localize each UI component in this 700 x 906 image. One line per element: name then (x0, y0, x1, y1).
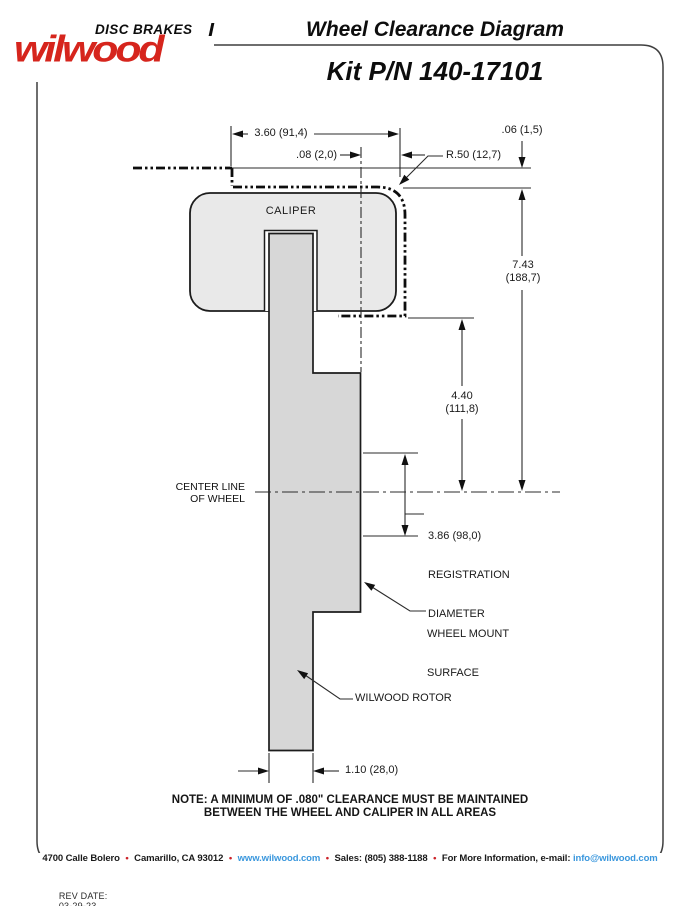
footer-email-link[interactable]: info@wilwood.com (573, 853, 658, 864)
wheel-mount-surface-label: WHEEL MOUNT SURFACE (427, 602, 509, 706)
footer-city: Camarillo, CA 93012 (134, 853, 223, 864)
footer-contact-bar: 4700 Calle Bolero • Camarillo, CA 93012 … (36, 853, 663, 864)
footer-website-link[interactable]: www.wilwood.com (238, 853, 321, 864)
dim-overall-height-mm: (188,7) (498, 272, 548, 285)
page: DISC BRAKES wilwood Wheel Clearance Diag… (0, 0, 700, 906)
registration-value: 3.86 (98,0) (428, 530, 510, 543)
caliper-label: CALIPER (256, 205, 326, 217)
rev-date-value: 03-29-23 (59, 901, 97, 906)
wheel-mount-label-1: WHEEL MOUNT (427, 628, 509, 641)
wilwood-logo: DISC BRAKES wilwood (14, 18, 214, 82)
rev-date: REV DATE: 03-29-23 (48, 881, 110, 906)
wilwood-rotor-label: WILWOOD ROTOR (355, 692, 452, 704)
dim-mount-to-center-in: 4.40 (437, 390, 487, 403)
footer-more-info: For More Information, e-mail: (442, 853, 571, 864)
dim-corner-radius: R.50 (12,7) (446, 149, 501, 161)
page-title: Wheel Clearance Diagram (205, 18, 665, 42)
dim-mount-to-center: 4.40 (111,8) (437, 390, 487, 415)
rev-date-label: REV DATE: (59, 891, 108, 901)
registration-label-1: REGISTRATION (428, 569, 510, 582)
logo-tagline-bar (209, 23, 215, 36)
dim-overall-height-in: 7.43 (498, 259, 548, 272)
wheel-mount-label-2: SURFACE (427, 667, 509, 680)
footer-bullet: • (122, 853, 131, 864)
footer-sales-phone: Sales: (805) 388-1188 (335, 853, 428, 864)
clearance-note: NOTE: A MINIMUM OF .080" CLEARANCE MUST … (100, 794, 600, 820)
center-line-label-1: CENTER LINE (155, 482, 245, 494)
center-line-label: CENTER LINE OF WHEEL (155, 482, 245, 505)
dim-overall-height: 7.43 (188,7) (498, 259, 548, 284)
clearance-note-line1: NOTE: A MINIMUM OF .080" CLEARANCE MUST … (100, 794, 600, 807)
logo-wordmark: wilwood (14, 28, 162, 70)
dim-caliper-width: 3.60 (91,4) (248, 127, 314, 139)
dim-rotor-thickness: 1.10 (28,0) (345, 764, 398, 776)
clearance-note-line2: BETWEEN THE WHEEL AND CALIPER IN ALL ARE… (100, 807, 600, 820)
footer-bullet: • (323, 853, 332, 864)
dim-side-clearance: .08 (2,0) (280, 149, 337, 161)
dim-top-clearance: .06 (1,5) (496, 124, 548, 136)
kit-part-number: Kit P/N 140-17101 (205, 56, 665, 87)
dim-mount-to-center-mm: (111,8) (437, 403, 487, 416)
footer-bullet: • (430, 853, 439, 864)
footer-address: 4700 Calle Bolero (42, 853, 120, 864)
footer-bullet: • (226, 853, 235, 864)
center-line-label-2: OF WHEEL (155, 494, 245, 506)
